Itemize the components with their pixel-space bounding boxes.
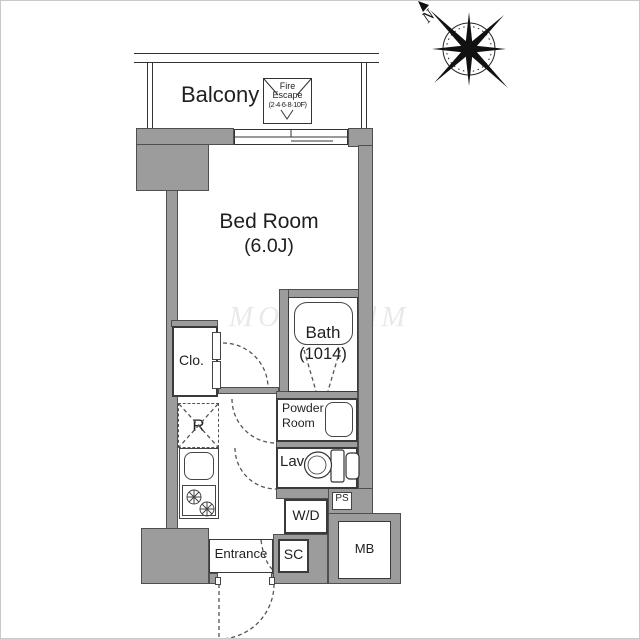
balcony-rail-right-2	[366, 63, 367, 128]
fire-escape-label-2: Escape	[272, 91, 302, 100]
wall-top-left-block	[136, 144, 209, 191]
compass-icon: N	[418, 1, 508, 88]
washer-dryer-label: W/D	[284, 508, 328, 523]
balcony-label: Balcony	[181, 83, 259, 107]
closet-door-panel-2	[212, 361, 221, 389]
entrance-label: Entrance	[209, 547, 273, 561]
balcony-rail-right	[361, 63, 362, 128]
refrigerator-label: R	[178, 417, 219, 435]
bedroom-label: Bed Room	[199, 211, 339, 234]
fire-escape-label-3: (2·4·6·8·10F)	[268, 100, 306, 109]
bath-label: Bath	[288, 324, 358, 342]
wall-right	[358, 145, 373, 513]
window-icon	[234, 129, 348, 145]
fire-escape-hatch: Fire Escape (2·4·6·8·10F)	[263, 78, 312, 124]
bath-size-label: (1014)	[288, 346, 358, 364]
lav-door-swing-arc	[235, 448, 276, 489]
wall-top-left-bar	[136, 128, 234, 145]
compass-north-label: N	[418, 6, 439, 27]
lavatory-label: Lav.	[280, 454, 307, 470]
powder-door-swing-arc	[232, 399, 276, 443]
kitchen-sink-icon	[184, 452, 214, 480]
bedroom-size-label: (6.0J)	[199, 236, 339, 257]
powder-room-label-1: Powder	[282, 402, 324, 415]
closet-door-panel	[212, 332, 221, 360]
balcony-top-line-2	[134, 62, 379, 63]
balcony-rail-left	[147, 63, 148, 128]
pipe-space-label: PS	[332, 494, 352, 505]
door-post-left	[215, 577, 221, 585]
powder-room-label-2: Room	[282, 417, 315, 430]
bedroom-door-swing-arc	[223, 343, 268, 388]
wall-bottom-left-block	[141, 528, 209, 584]
balcony-rail-left-2	[152, 63, 153, 128]
powder-sink-icon	[325, 402, 353, 437]
door-post-right	[269, 577, 275, 585]
floor-plan: MOOOOdM Balcony Fire Escape (2·4·6·8·10F…	[0, 0, 640, 639]
shoe-closet-label: SC	[278, 547, 309, 562]
wall-under-lav	[276, 488, 332, 499]
wall-bedroom-door	[218, 387, 279, 394]
closet-label: Clo.	[179, 353, 204, 368]
north-arrowhead	[418, 1, 429, 12]
stove-icon	[182, 485, 216, 516]
balcony-top-line	[134, 53, 379, 54]
meter-box-label: MB	[338, 542, 391, 556]
entrance-door-swing-arc	[219, 584, 274, 639]
